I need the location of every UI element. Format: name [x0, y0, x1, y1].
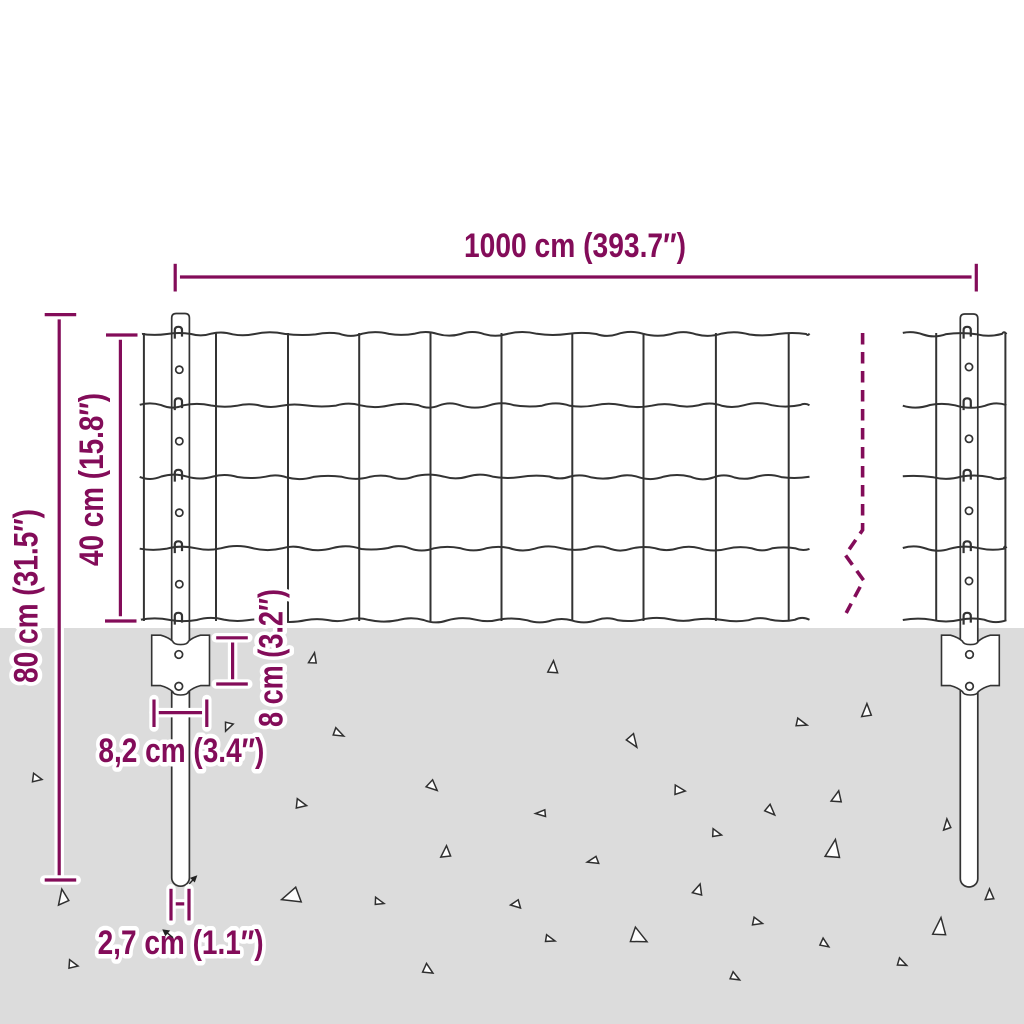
svg-text:2,7 cm (1.1″): 2,7 cm (1.1″) — [98, 924, 264, 962]
svg-text:1000 cm (393.7″): 1000 cm (393.7″) — [464, 227, 686, 265]
svg-text:8 cm (3.2″): 8 cm (3.2″) — [253, 589, 291, 727]
svg-text:40 cm (15.8″): 40 cm (15.8″) — [73, 393, 111, 566]
svg-text:80 cm (31.5″): 80 cm (31.5″) — [8, 509, 46, 683]
svg-text:8,2 cm (3.4″): 8,2 cm (3.4″) — [98, 732, 264, 770]
